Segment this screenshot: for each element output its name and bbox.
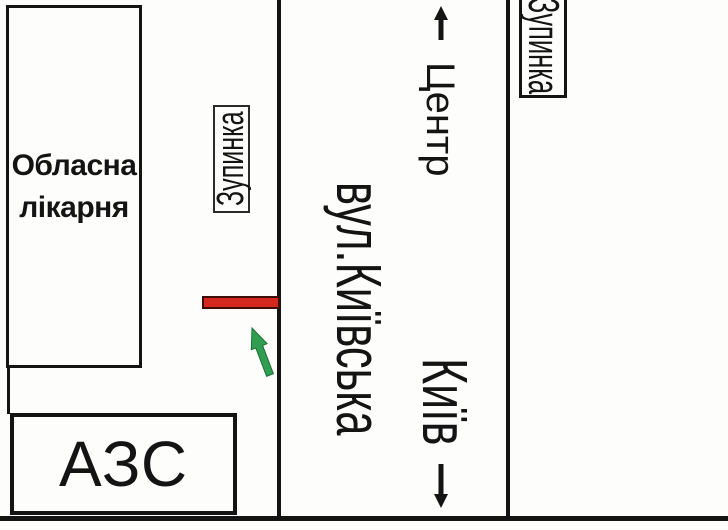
left-boundary-line xyxy=(7,366,10,414)
bus-stop-left-label: Зупинка xyxy=(214,112,248,207)
direction-center-label: Центр xyxy=(419,62,461,177)
billboard-marker xyxy=(202,296,280,309)
down-arrow-icon xyxy=(432,464,450,508)
direction-kyiv-label: Київ xyxy=(413,358,477,445)
bus-stop-sign-left: Зупинка xyxy=(213,105,250,213)
up-arrow-icon xyxy=(432,6,450,40)
road-left-line xyxy=(277,0,281,517)
bus-stop-sign-right: Зупинка xyxy=(519,0,567,98)
road-right-line xyxy=(506,0,510,517)
location-pointer-arrow-icon xyxy=(236,320,284,384)
location-map: Обласна лікарня АЗС Зупинка Зупинка вул.… xyxy=(0,0,728,530)
cross-street-line xyxy=(0,516,728,521)
gas-station-label: АЗС xyxy=(59,427,188,501)
hospital-building: Обласна лікарня xyxy=(6,5,142,368)
bus-stop-right-label: Зупинка xyxy=(522,0,564,94)
street-name-label: вул.Київська xyxy=(327,182,391,435)
hospital-label: Обласна лікарня xyxy=(9,145,140,229)
gas-station-building: АЗС xyxy=(10,413,237,515)
